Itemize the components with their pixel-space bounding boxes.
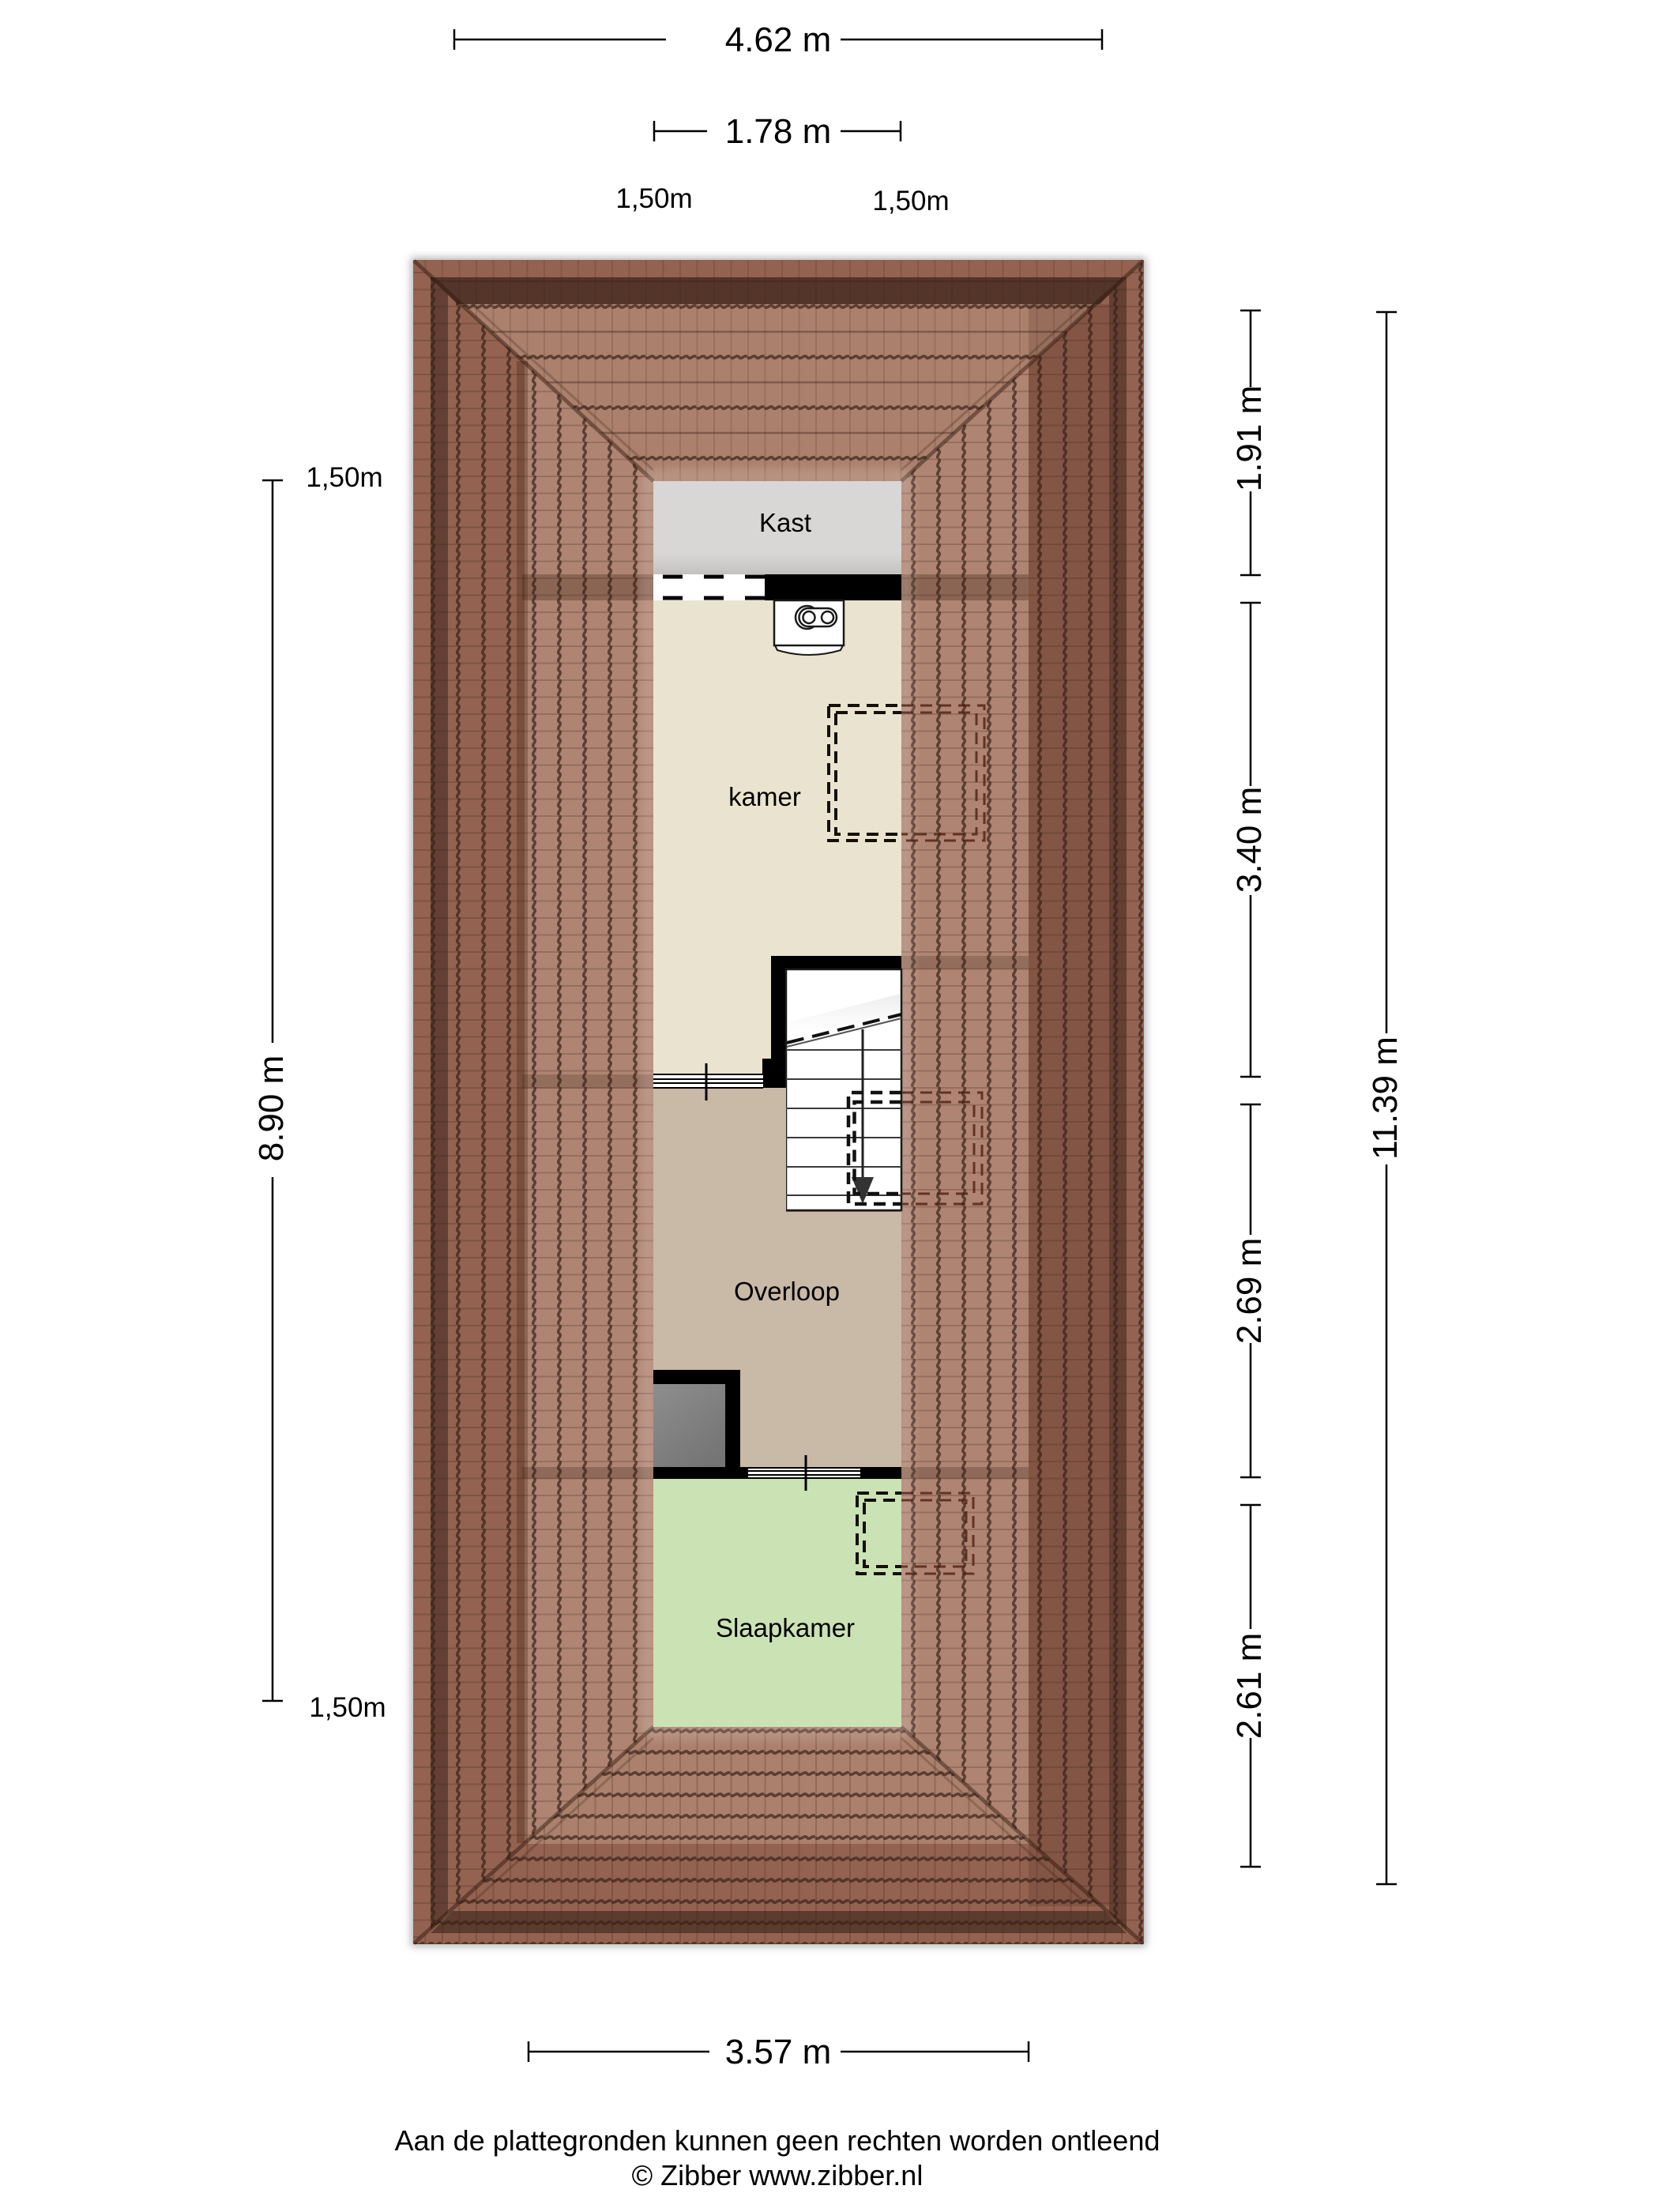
svg-text:1,50m: 1,50m — [306, 462, 382, 493]
svg-text:8.90 m: 8.90 m — [252, 1055, 291, 1162]
svg-text:1,50m: 1,50m — [872, 186, 949, 216]
svg-text:3.57 m: 3.57 m — [725, 2033, 832, 2071]
svg-text:1.78 m: 1.78 m — [725, 112, 832, 151]
svg-text:kamer: kamer — [728, 782, 801, 811]
svg-text:Slaapkamer: Slaapkamer — [716, 1613, 855, 1642]
svg-text:1.91 m: 1.91 m — [1230, 386, 1269, 492]
svg-text:4.62 m: 4.62 m — [725, 21, 832, 59]
svg-text:© Zibber www.zibber.nl: © Zibber www.zibber.nl — [632, 2159, 924, 2191]
svg-text:2.69 m: 2.69 m — [1230, 1238, 1269, 1345]
svg-text:1,50m: 1,50m — [309, 1692, 386, 1723]
svg-text:11.39 m: 11.39 m — [1366, 1036, 1405, 1160]
svg-text:Kast: Kast — [759, 508, 811, 537]
svg-text:Overloop: Overloop — [734, 1277, 840, 1306]
svg-text:1,50m: 1,50m — [615, 183, 692, 214]
svg-text:3.40 m: 3.40 m — [1230, 787, 1269, 893]
svg-text:Aan de plattegronden kunnen ge: Aan de plattegronden kunnen geen rechten… — [395, 2124, 1161, 2157]
svg-text:2.61 m: 2.61 m — [1230, 1633, 1269, 1740]
